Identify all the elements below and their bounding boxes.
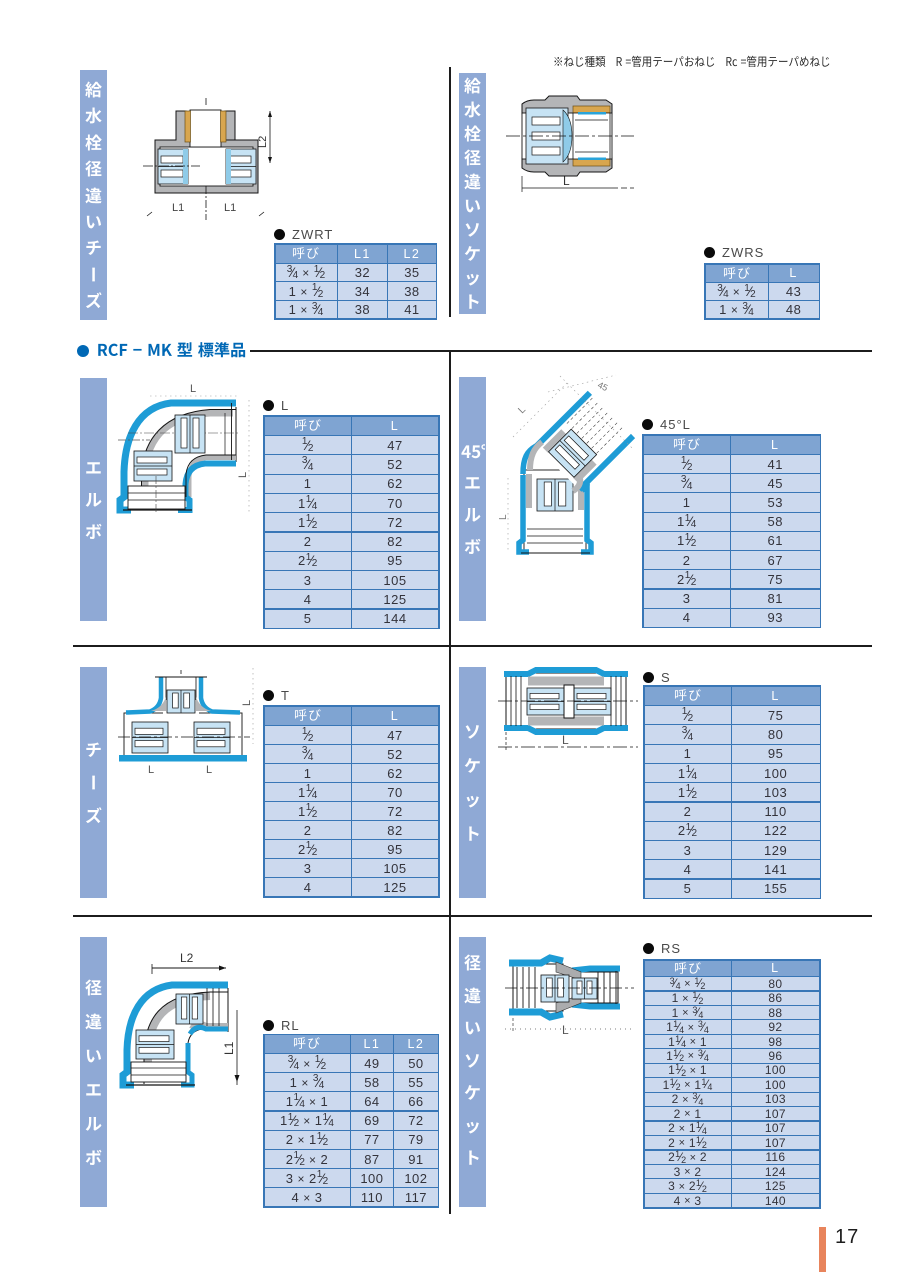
svg-text:L: L — [148, 764, 154, 776]
svg-text:L: L — [241, 700, 253, 706]
svg-text:L: L — [190, 383, 196, 395]
svg-text:L: L — [237, 472, 249, 478]
svg-text:L2: L2 — [180, 951, 194, 965]
svg-text:45: 45 — [596, 380, 609, 393]
svg-text:L2: L2 — [257, 136, 269, 148]
svg-text:L1: L1 — [172, 202, 184, 214]
svg-text:L: L — [206, 764, 212, 776]
svg-text:L: L — [562, 733, 569, 747]
svg-text:L: L — [562, 1023, 569, 1037]
svg-text:L: L — [498, 514, 509, 520]
svg-text:L1: L1 — [222, 1041, 236, 1055]
svg-text:L1: L1 — [224, 202, 236, 214]
svg-text:L: L — [516, 404, 528, 416]
svg-text:L: L — [563, 174, 570, 188]
